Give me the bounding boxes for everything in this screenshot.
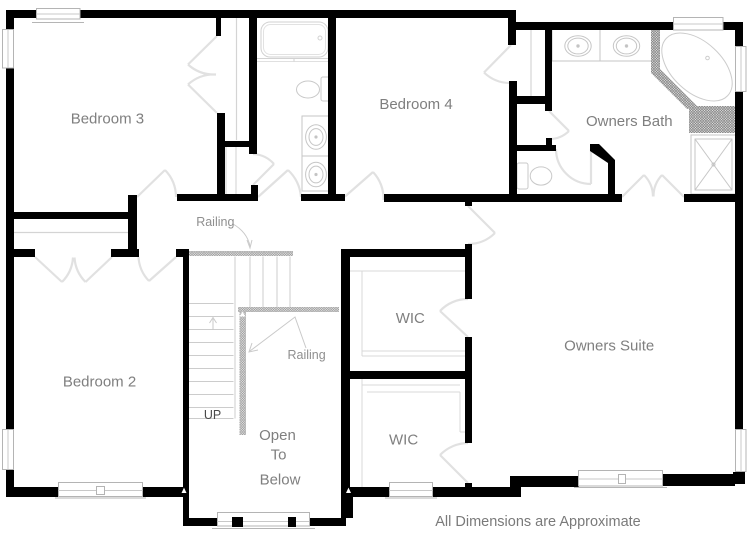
- svg-text:Owners Bath: Owners Bath: [586, 113, 673, 130]
- svg-text:Railing: Railing: [287, 348, 325, 362]
- svg-text:Owners Suite: Owners Suite: [564, 338, 654, 355]
- svg-text:Below: Below: [260, 472, 301, 489]
- svg-text:WIC: WIC: [396, 310, 425, 327]
- svg-text:Railing: Railing: [196, 215, 234, 229]
- svg-text:To: To: [271, 447, 287, 464]
- svg-text:Open: Open: [259, 427, 296, 444]
- svg-text:Bedroom 2: Bedroom 2: [63, 374, 136, 391]
- svg-text:Bedroom 3: Bedroom 3: [71, 111, 144, 128]
- svg-text:UP: UP: [204, 408, 221, 422]
- svg-text:WIC: WIC: [389, 431, 418, 448]
- svg-text:All Dimensions are Approximate: All Dimensions are Approximate: [435, 514, 641, 530]
- svg-text:Bedroom 4: Bedroom 4: [379, 96, 452, 113]
